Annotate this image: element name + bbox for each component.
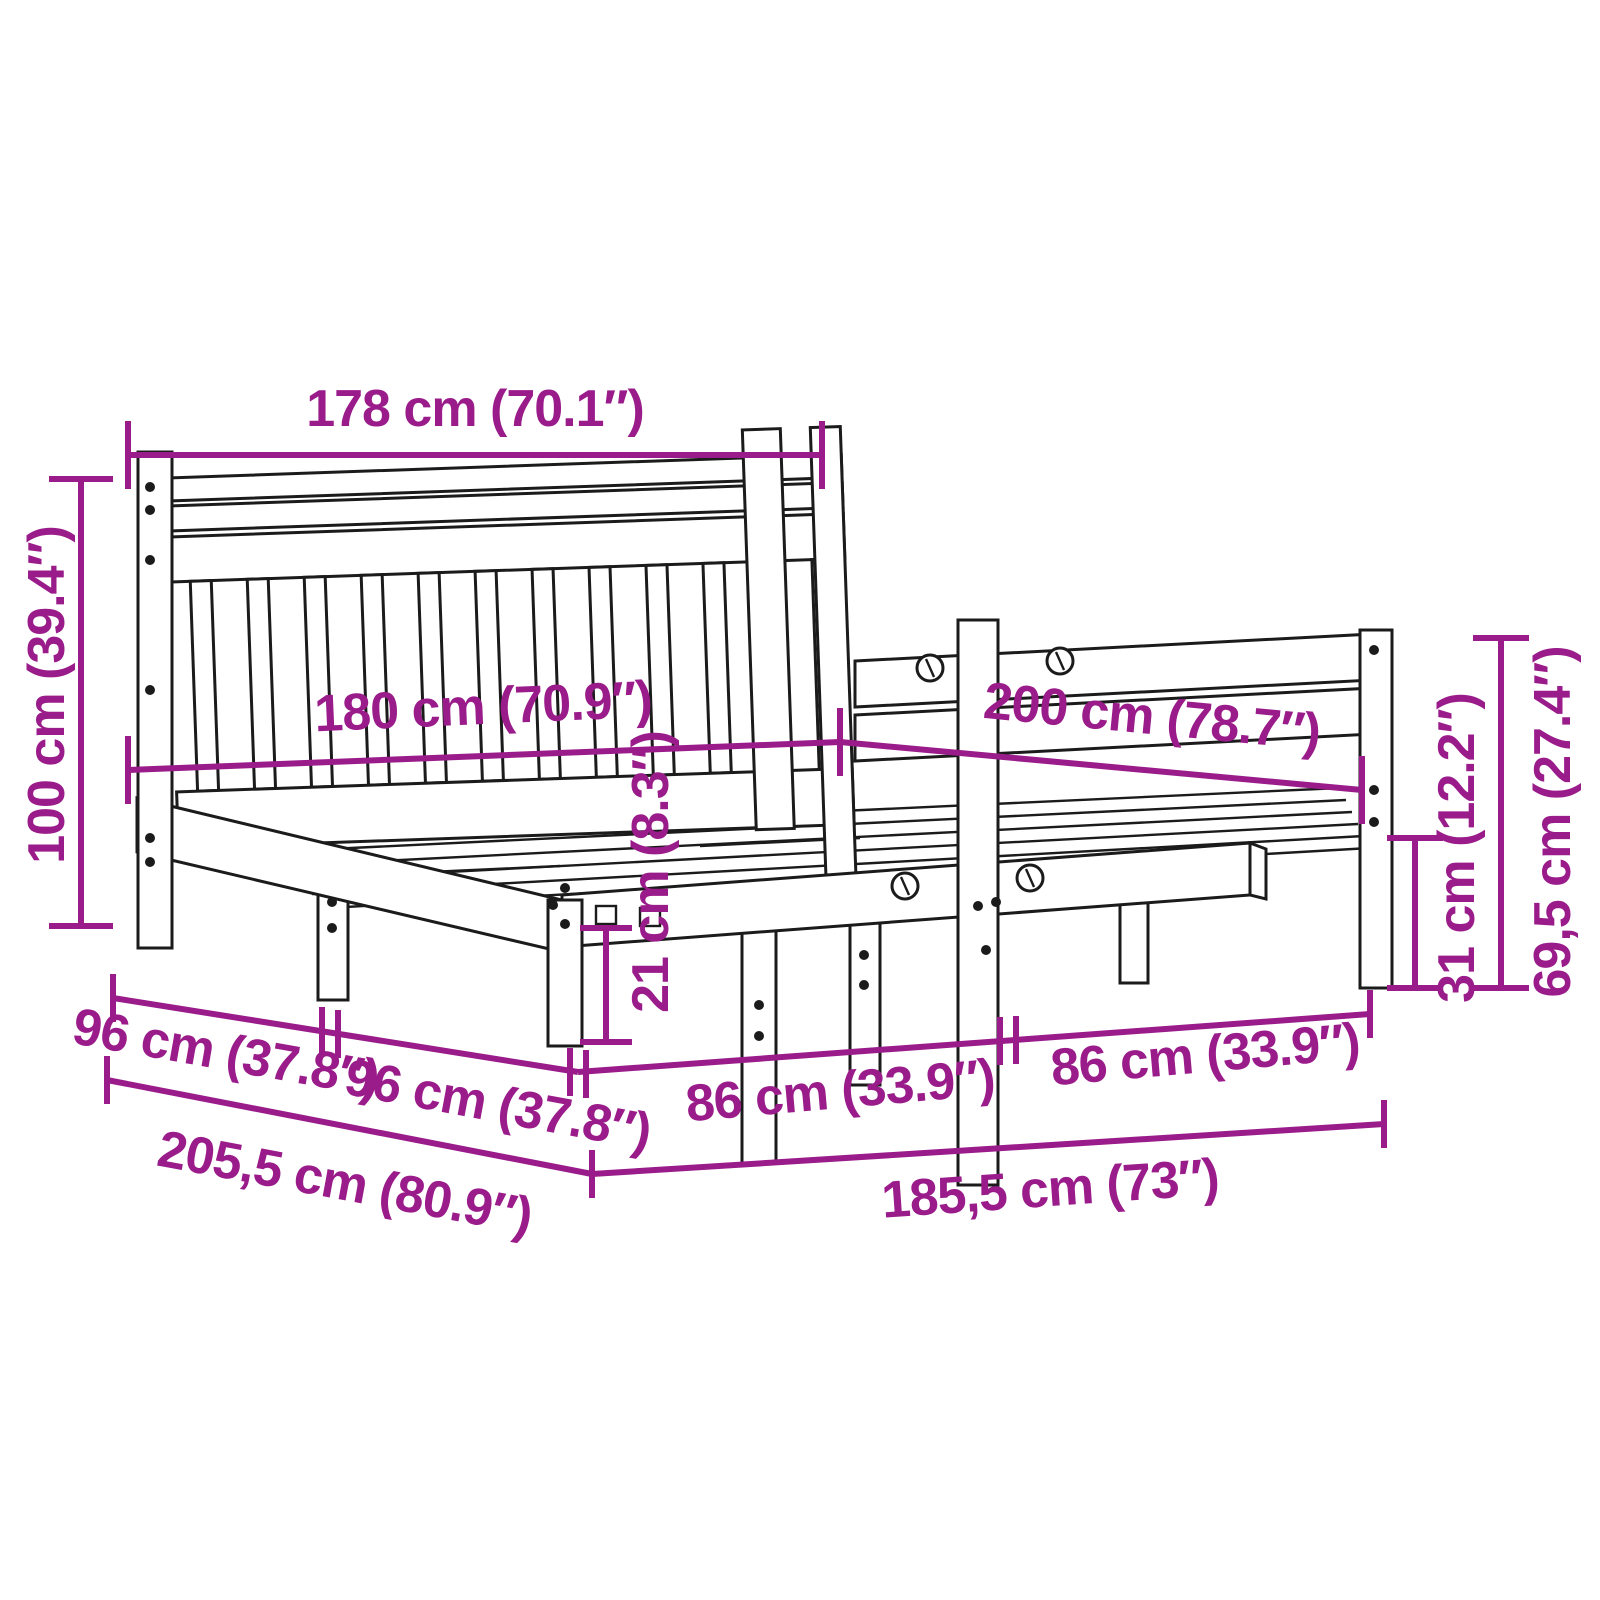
leg-spacing-side-2-label: 96 cm (37.8″) <box>340 1048 655 1161</box>
under-bed-clearance-label: 21 cm (8.3″) <box>622 731 680 1013</box>
dim-headboard-height: 100 cm (39.4″) <box>18 479 113 926</box>
footboard-height-label: 69,5 cm (27.4″) <box>1524 646 1582 997</box>
headboard-width-label: 178 cm (70.1″) <box>306 380 644 438</box>
headboard-right-post <box>810 427 857 911</box>
bed-dimension-diagram: 178 cm (70.1″) 100 cm (39.4″) 180 cm (70… <box>0 0 1600 1600</box>
headboard-height-label: 100 cm (39.4″) <box>18 526 76 864</box>
leg-spacing-front-2-label: 86 cm (33.9″) <box>1048 1013 1362 1098</box>
headboard-left-post <box>138 452 172 948</box>
dim-side-rail-height: 31 cm (12.2″) <box>1387 693 1486 1003</box>
side-rail-height-label: 31 cm (12.2″) <box>1428 693 1486 1003</box>
bed-leg <box>850 903 880 1085</box>
frame-total-width-label: 185,5 cm (73″) <box>880 1148 1221 1229</box>
diagram-canvas: 178 cm (70.1″) 100 cm (39.4″) 180 cm (70… <box>0 0 1600 1600</box>
side-rail-end <box>1250 843 1266 899</box>
dim-footboard-height: 69,5 cm (27.4″) <box>1473 638 1582 998</box>
frame-total-length-label: 205,5 cm (80.9″) <box>153 1120 536 1246</box>
